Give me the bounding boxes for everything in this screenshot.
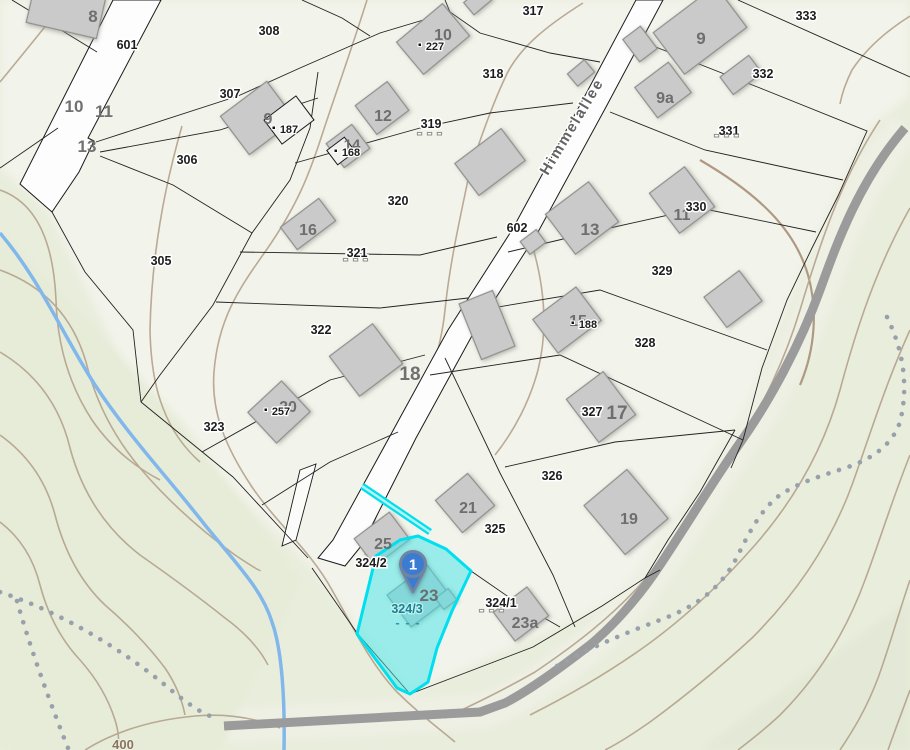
house-number-label: 12 [374,108,392,125]
parcel-number-label: 320 [388,194,409,208]
parcel-number-label: 328 [635,336,656,350]
house-number-label: 18 [399,364,420,385]
parcel-number-label: 307 [220,87,241,101]
annex-dot [272,126,276,130]
house-number-label: 11 [95,102,113,121]
house-number-label: 10 [65,97,84,116]
annex-number-label: 188 [579,319,597,331]
house-number-label: 25 [374,536,392,553]
parcel-number-label: 327 [582,405,603,419]
parcel-number-label: 333 [796,9,817,23]
annex-number-label: 257 [272,406,290,418]
parcel-number-label: 325 [485,522,506,536]
vegetation-dash-mark: - - - [714,127,739,142]
annex-dot [334,149,338,153]
house-number-label: 17 [606,403,627,424]
vegetation-dash-mark: - - - [479,602,504,617]
parcel-number-label: 326 [542,469,563,483]
parcel-number-label: 306 [177,153,198,167]
parcel-number-label: 329 [652,264,673,278]
house-number-label: 9 [264,111,273,128]
parcel-number-label: 308 [259,24,280,38]
annex-dot [264,408,268,412]
vegetation-dash-mark: - - - [395,615,420,630]
marker-number: 1 [409,557,417,574]
vegetation-dash-mark: - - - [417,125,442,140]
selected-parcel-label: 324/3 [391,602,422,616]
house-number-label: 19 [620,511,638,528]
annex-dot [571,321,575,325]
parcel-number-label: 324/2 [355,556,386,570]
map-viewport[interactable]: 810111391214101699a11131518172021192323a… [0,0,910,750]
house-number-label: 8 [88,7,97,26]
house-number-label: 16 [299,222,317,239]
parcel-number-label: 602 [507,221,528,235]
background-terrain [0,0,910,750]
parcel-number-label: 601 [117,38,138,52]
parcel-number-label: 332 [753,67,774,81]
cadastral-map: 810111391214101699a11131518172021192323a… [0,0,910,750]
house-number-label: 13 [581,220,600,239]
house-number-label: 23a [512,615,539,632]
parcel-number-label: 323 [204,420,225,434]
house-number-label: 21 [459,500,477,517]
annex-number-label: 168 [342,147,360,159]
contour-elevation-label: 400 [112,737,134,750]
parcel-number-label: 322 [311,323,332,337]
parcel-number-label: 330 [686,200,707,214]
vegetation-dash-mark: - - - [343,251,368,266]
parcel-number-label: 318 [483,67,504,81]
annex-number-label: 227 [426,41,444,53]
house-number-label: 9a [656,90,674,107]
parcel-number-label: 317 [523,4,544,18]
house-number-label: 13 [78,137,97,156]
parcel-number-label: 305 [151,254,172,268]
annex-number-label: 187 [280,124,298,136]
annex-dot [418,43,422,47]
house-number-label: 9 [696,29,705,48]
